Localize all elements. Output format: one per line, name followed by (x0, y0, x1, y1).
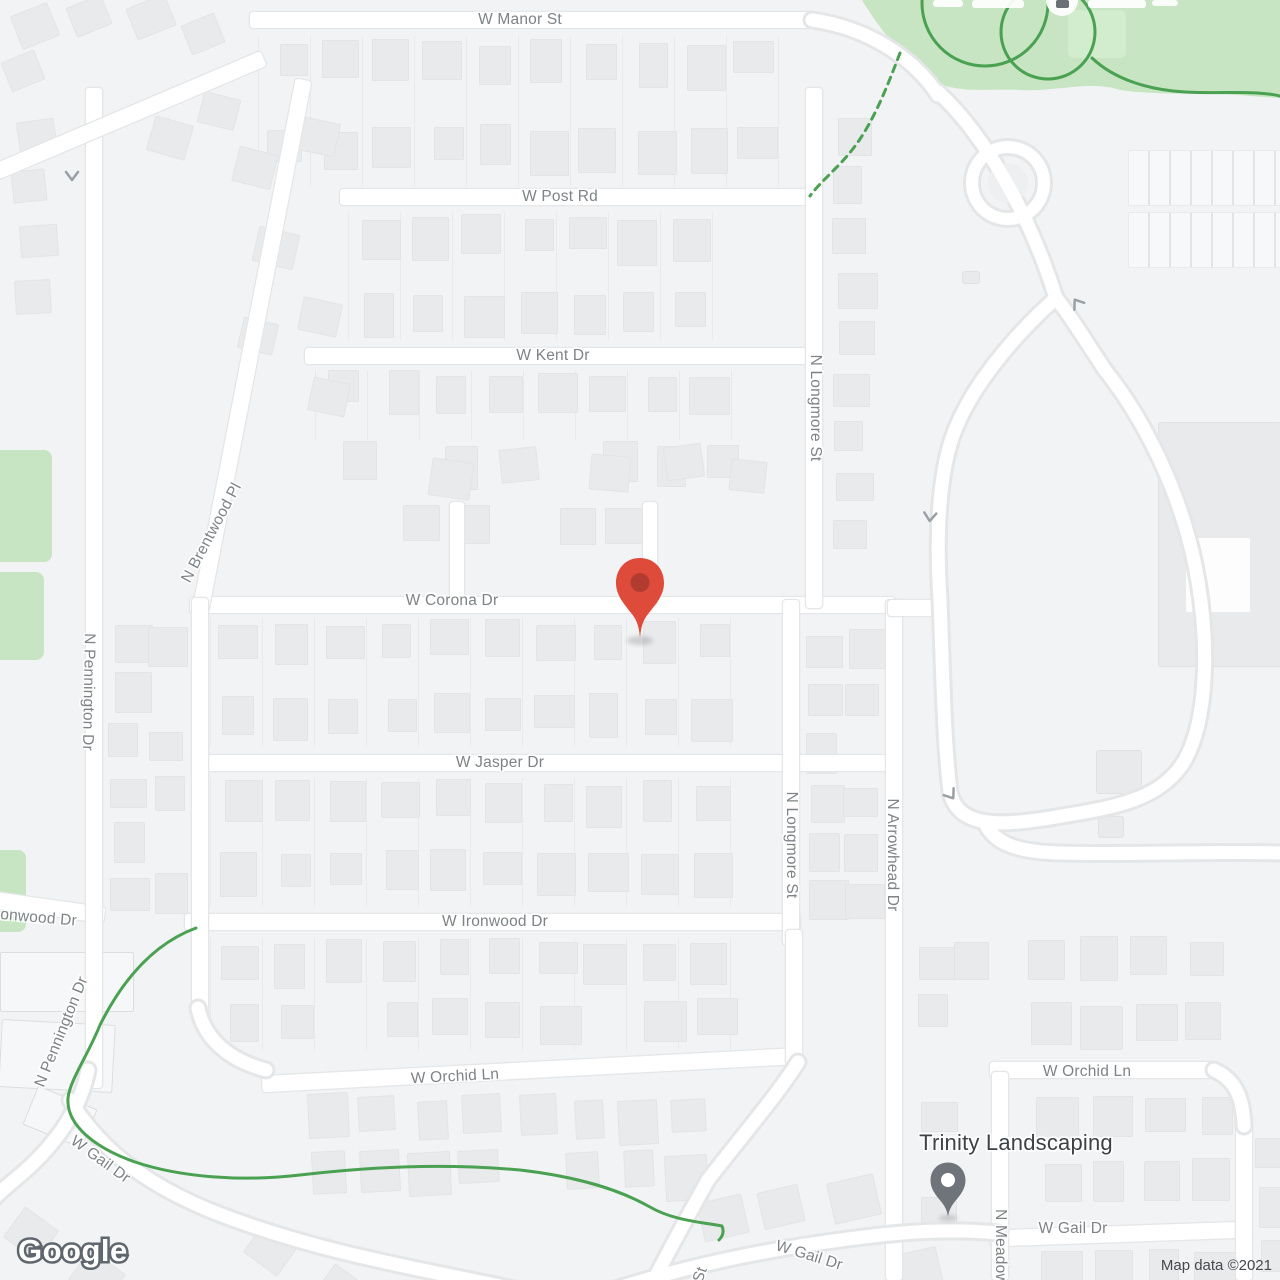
building (155, 873, 189, 914)
park-strip (0, 850, 26, 932)
building (605, 508, 648, 544)
building (357, 1096, 396, 1133)
building (839, 321, 875, 355)
building (921, 1102, 958, 1132)
road-segment (340, 189, 818, 205)
building (445, 446, 478, 490)
road-segment (305, 348, 820, 364)
building (115, 672, 152, 713)
building (243, 1221, 299, 1276)
building (728, 458, 767, 494)
building (197, 91, 242, 131)
building (297, 296, 343, 338)
building (403, 505, 441, 541)
street-label: W Manor St (478, 11, 562, 29)
road-segment (888, 600, 948, 616)
building (844, 834, 879, 872)
building (110, 878, 150, 910)
poi-label[interactable]: Trinity Landscaping (919, 1130, 1113, 1156)
street-label: N Brentwood Pl (178, 480, 246, 586)
building (826, 1173, 882, 1225)
building (114, 822, 145, 863)
map-attribution: Map data ©2021 (1161, 1257, 1272, 1274)
building (1028, 940, 1065, 980)
building (896, 1246, 943, 1280)
building (125, 0, 177, 41)
map-canvas[interactable]: W Manor StW Post RdW Kent DrN Longmore S… (0, 0, 1280, 1280)
building (918, 994, 948, 1027)
building (833, 374, 870, 408)
building (359, 1149, 402, 1193)
building (843, 788, 878, 817)
building (149, 732, 183, 761)
building (14, 279, 52, 315)
building (808, 684, 843, 716)
building (428, 457, 475, 500)
building (845, 684, 879, 716)
building (664, 1154, 709, 1202)
road-segment (450, 502, 464, 605)
street-label: W Orchid Ln (410, 1066, 499, 1089)
building (836, 473, 874, 501)
clipped-park-label (972, 0, 1024, 8)
building (806, 636, 843, 668)
building (806, 733, 836, 774)
parcel-lines (315, 370, 765, 440)
road-segment (192, 598, 208, 1018)
building (1185, 1002, 1221, 1040)
parcel-lines (210, 778, 770, 906)
courtyard (1186, 538, 1250, 612)
building (461, 1093, 502, 1134)
road-segment (190, 597, 895, 613)
street-label: W Post Rd (522, 188, 598, 206)
building (1145, 1098, 1186, 1131)
park-icon-glyph (1056, 0, 1069, 8)
building (498, 446, 539, 484)
building (811, 785, 845, 822)
building (1080, 936, 1119, 981)
google-logo[interactable]: Google (14, 1230, 144, 1272)
street-label: N Longmore St (782, 792, 800, 899)
street-label: W Gail Dr (1039, 1220, 1108, 1238)
commercial-building (22, 1086, 97, 1149)
street-label: W Gail Dr (773, 1237, 844, 1274)
destination-pin[interactable] (613, 556, 667, 647)
building (663, 443, 705, 482)
building (1093, 1161, 1123, 1202)
building (110, 779, 147, 808)
building (838, 118, 872, 156)
road-segment (992, 1072, 1008, 1280)
small-building (1098, 816, 1124, 838)
building (155, 776, 185, 812)
street-label: N Arrowhead Dr (883, 798, 901, 911)
building (809, 833, 841, 872)
building (1259, 1187, 1280, 1228)
building (1095, 1250, 1133, 1280)
street-label: W Kent Dr (516, 347, 589, 365)
street-label: W Jasper Dr (456, 754, 544, 772)
building (1130, 936, 1167, 975)
building (849, 629, 887, 669)
building (560, 508, 596, 545)
building (1136, 1004, 1179, 1041)
building (845, 884, 885, 919)
building (148, 627, 187, 666)
building (1041, 1251, 1083, 1280)
parcel-lines (348, 212, 763, 340)
street-label: W Corona Dr (406, 592, 499, 610)
building (1190, 942, 1224, 977)
building (809, 880, 849, 919)
building (696, 1193, 750, 1242)
building (451, 505, 491, 543)
commercial-building (0, 952, 134, 1012)
road-segment (185, 914, 800, 930)
building (343, 441, 377, 480)
road-segment (262, 1048, 802, 1092)
park-strip (0, 450, 52, 562)
building (10, 168, 47, 203)
building (16, 118, 58, 157)
svg-text:Google: Google (18, 1233, 128, 1268)
building (108, 723, 138, 757)
clipped-park-label (933, 0, 963, 7)
building (574, 1100, 605, 1140)
road-segment (250, 12, 815, 28)
street-label: W Ironwood Dr (442, 913, 548, 931)
building (832, 218, 866, 254)
building (623, 1149, 655, 1187)
poi-pin[interactable] (928, 1161, 968, 1224)
building (307, 1092, 350, 1139)
building (670, 1099, 707, 1134)
building (1202, 1097, 1233, 1135)
small-building (1096, 750, 1142, 794)
building (589, 453, 632, 492)
building (313, 1263, 369, 1280)
clipped-park-label (1152, 0, 1178, 6)
parcel-lines (210, 938, 770, 1050)
building (237, 316, 279, 355)
park-strip (0, 572, 44, 660)
building (707, 445, 739, 478)
building (407, 1151, 452, 1197)
building (1045, 1164, 1081, 1202)
building (1255, 1138, 1280, 1168)
building (565, 1151, 600, 1190)
commercial-building (0, 1019, 116, 1093)
parcel-lines (210, 618, 770, 746)
building (919, 947, 956, 980)
road-segment (783, 600, 799, 945)
road-segment (786, 930, 802, 1065)
building (833, 520, 868, 550)
building (833, 166, 862, 203)
parking-lot (1128, 150, 1280, 206)
building (603, 441, 637, 482)
building (417, 1100, 449, 1140)
road-segment (86, 88, 102, 1088)
building (838, 273, 878, 309)
building (10, 2, 61, 50)
street-label: N Pennington Dr (78, 633, 98, 751)
street-label: N Longmore St (806, 355, 824, 462)
road-segment (990, 1062, 1218, 1078)
parking-lot (1128, 212, 1280, 268)
building (1080, 1006, 1123, 1051)
street-label: N Longmore St (658, 1265, 711, 1280)
road-segment (192, 755, 897, 771)
building (756, 1184, 805, 1230)
street-label: W Orchid Ln (1043, 1063, 1131, 1081)
building (180, 12, 225, 55)
road-segment (0, 51, 267, 179)
building (657, 446, 686, 488)
clipped-park-label (1088, 0, 1146, 8)
building (617, 1099, 660, 1146)
building (519, 1093, 558, 1136)
building (1144, 1161, 1180, 1201)
street-label: N Meadow (991, 1209, 1009, 1280)
building (1031, 1002, 1072, 1045)
building (65, 0, 112, 38)
building (311, 1150, 347, 1195)
building (115, 625, 153, 663)
building (251, 226, 300, 271)
building (457, 1149, 500, 1184)
road-segment (990, 1221, 1252, 1246)
markers-layer (0, 0, 1280, 1280)
parcel-lines (258, 36, 813, 186)
small-building (962, 271, 980, 284)
road-segment (886, 600, 902, 1280)
building (954, 942, 989, 980)
building (19, 224, 59, 259)
building (0, 49, 45, 92)
building (1192, 1158, 1230, 1202)
building (834, 421, 864, 451)
building (146, 115, 194, 161)
